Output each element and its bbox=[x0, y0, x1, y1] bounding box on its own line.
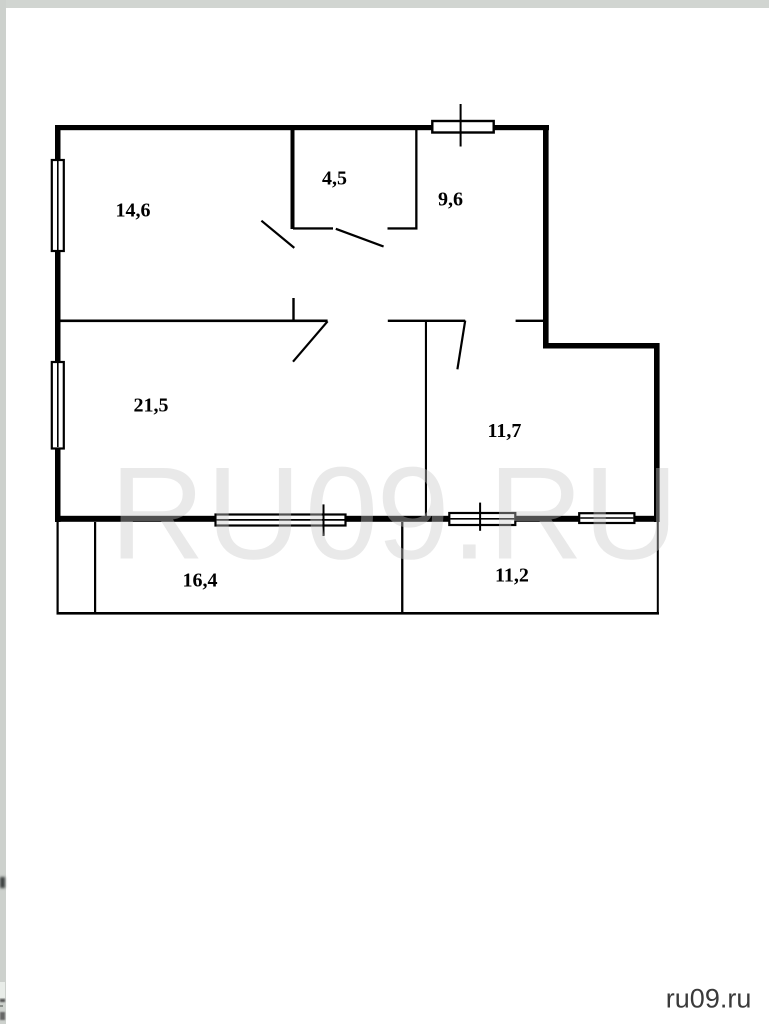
svg-text:11,7: 11,7 bbox=[488, 420, 522, 442]
svg-text:ru09.ru: ru09.ru bbox=[666, 984, 752, 1014]
svg-text:RU09.RU: RU09.RU bbox=[110, 440, 679, 587]
svg-text:21,5: 21,5 bbox=[134, 395, 169, 417]
svg-text:14,6: 14,6 bbox=[116, 200, 151, 222]
svg-text:9,6: 9,6 bbox=[438, 188, 463, 210]
svg-text:4,5: 4,5 bbox=[322, 167, 347, 189]
